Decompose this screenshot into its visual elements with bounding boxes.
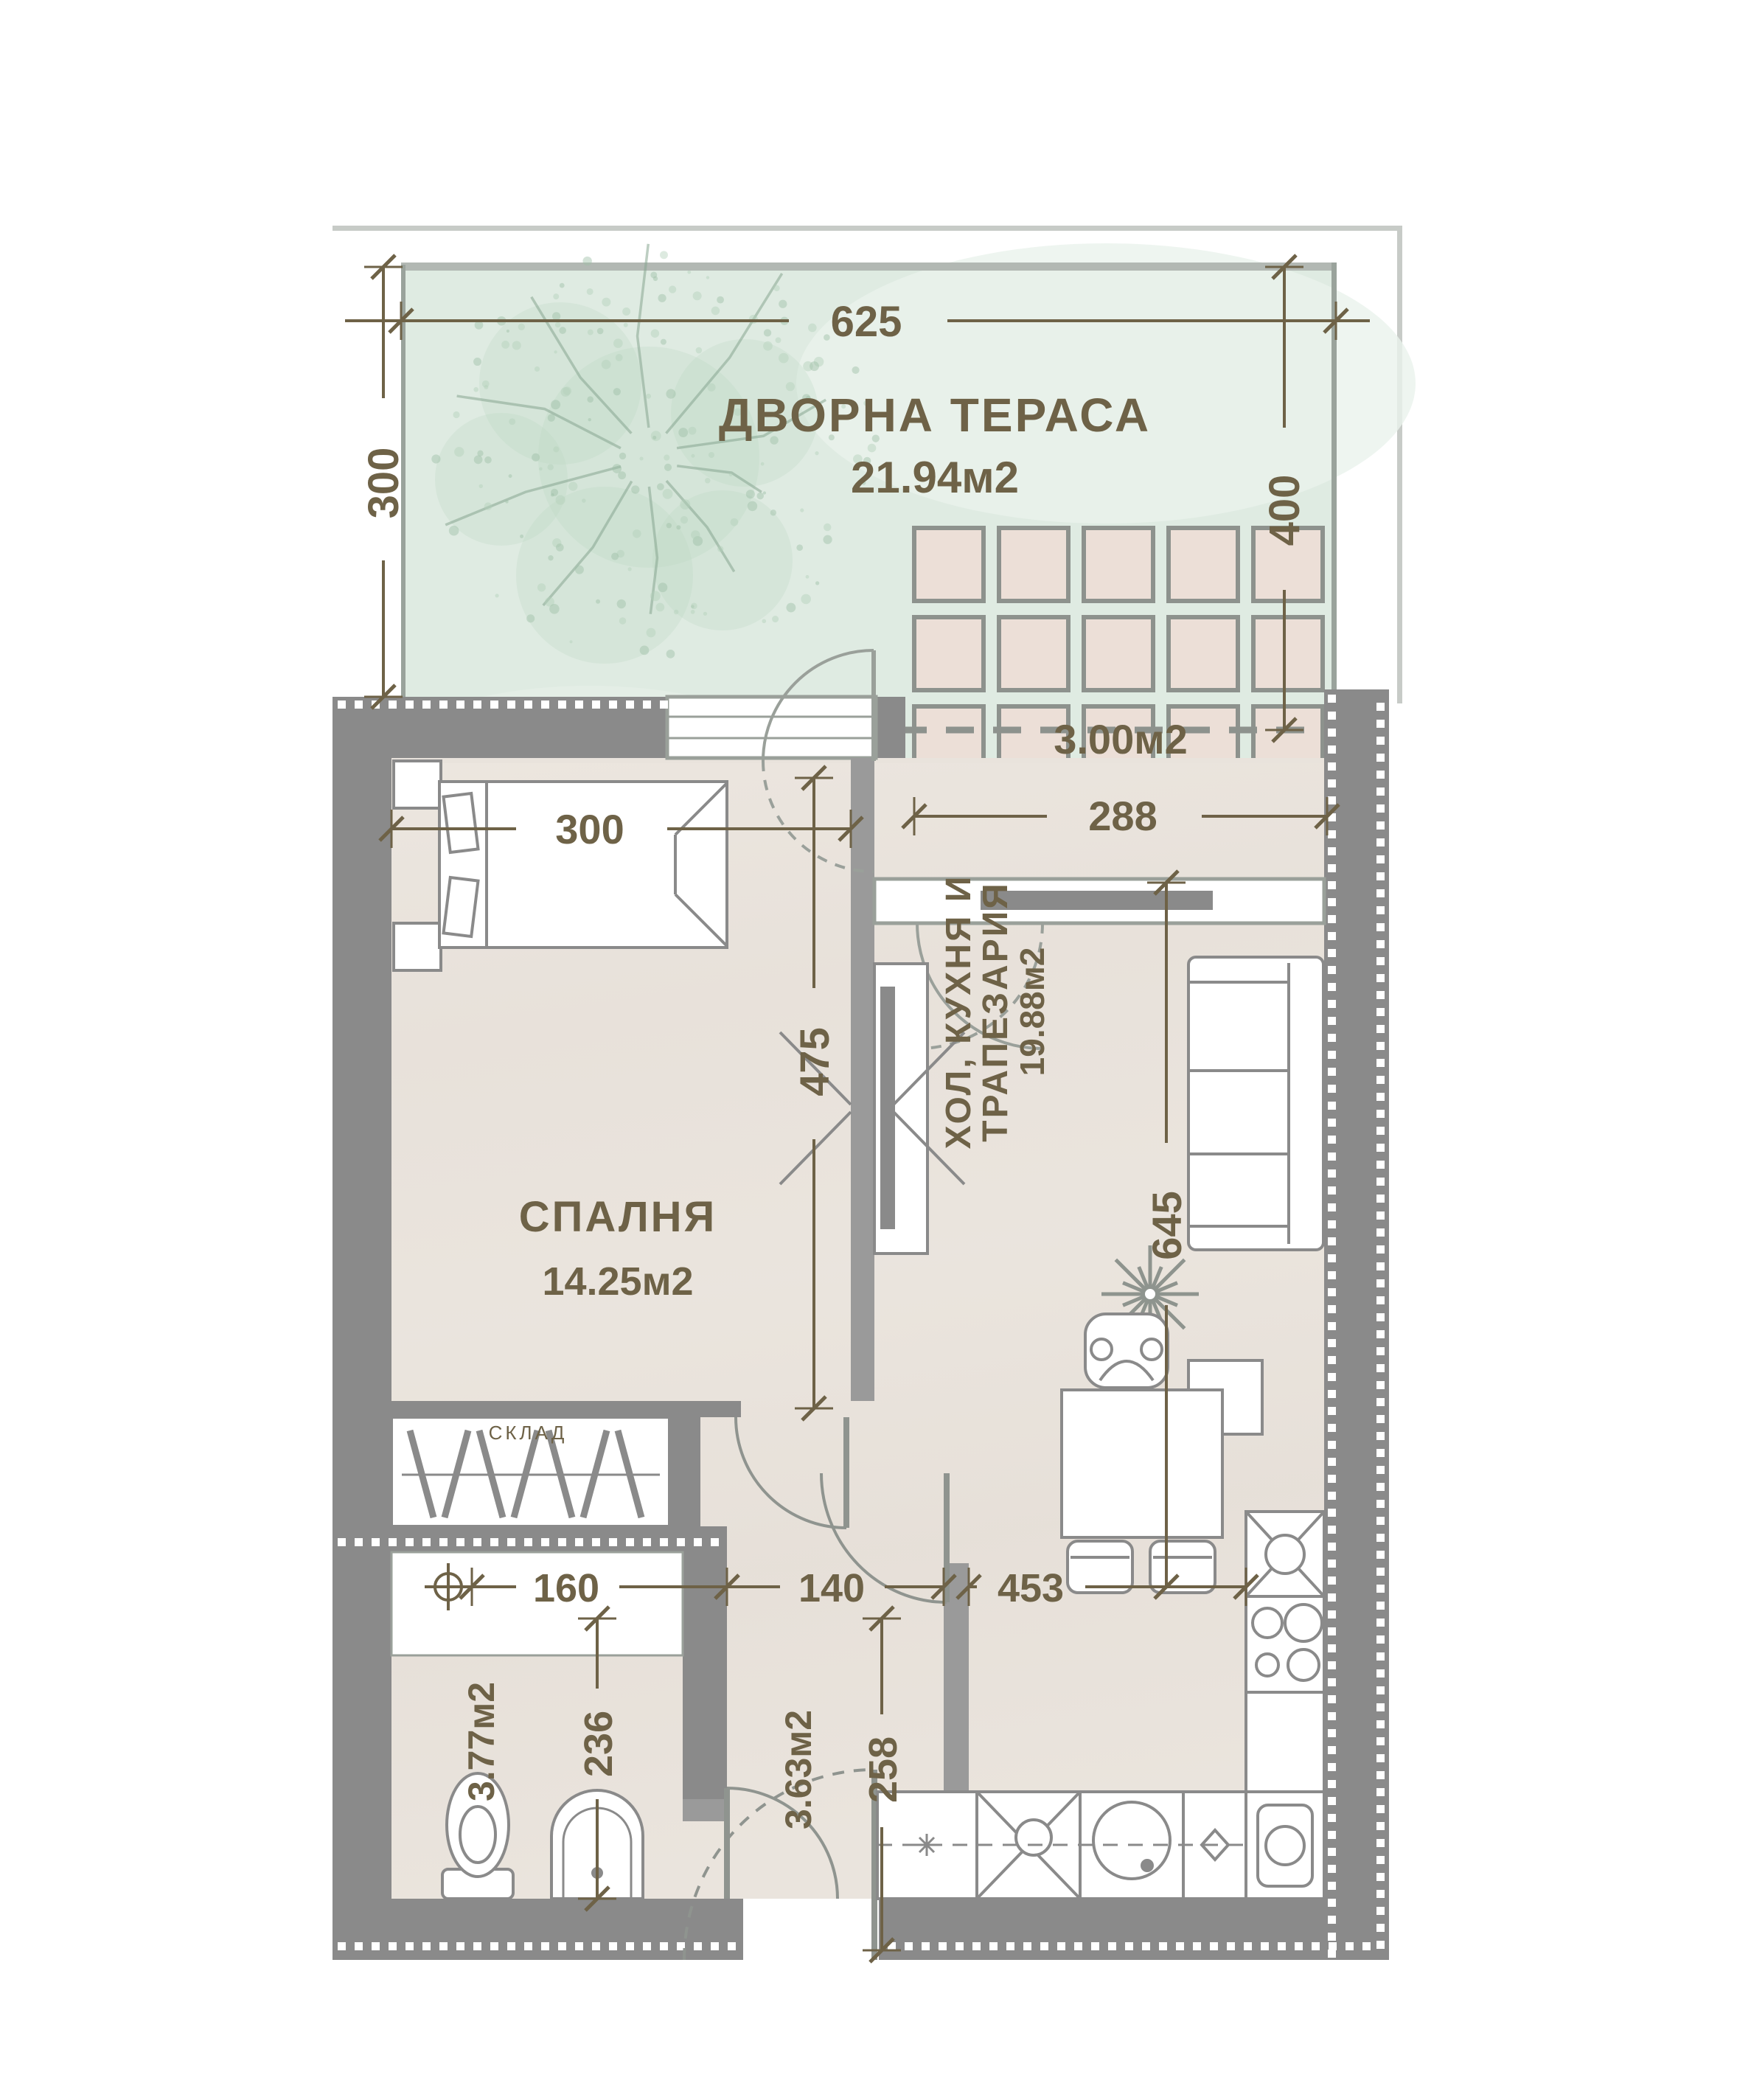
hall-area-label: 3.63м2	[778, 1710, 819, 1829]
dim-bathroom-depth: 236	[577, 1711, 621, 1777]
svg-text:ТРАПЕЗАРИЯ: ТРАПЕЗАРИЯ	[976, 881, 1015, 1141]
patio-area-label: 3.00м2	[1054, 716, 1188, 762]
wall-partition-bedroom-living	[851, 758, 874, 1401]
floor-plan-drawing: ДВОРНА ТЕРАСА 21.94м2 625 300 400 3.00м2…	[0, 0, 1751, 2100]
sofa	[1188, 957, 1323, 1250]
dim-patio-width: 288	[1088, 793, 1157, 839]
dim-terrace-depth: 300	[360, 448, 408, 519]
wall-bathroom-door-jamb	[683, 1799, 727, 1821]
dim-hall-width: 140	[798, 1566, 865, 1610]
kitchen-column	[1246, 1512, 1324, 1899]
wall-bottom-left	[333, 1899, 743, 1960]
closet-label: СКЛАД	[489, 1422, 568, 1444]
wall-bottom-right	[879, 1899, 1389, 1960]
dim-bedroom-width: 300	[555, 806, 624, 852]
dim-living-depth: 645	[1143, 1191, 1190, 1259]
bedroom-window	[667, 697, 876, 758]
svg-text:19.88м2: 19.88м2	[1013, 948, 1051, 1077]
kitchen-counter	[877, 1792, 1246, 1899]
wall-bedroom-top-jamb	[876, 697, 905, 758]
dim-terrace-width: 625	[831, 298, 902, 346]
terrace-area-label: 21.94м2	[851, 453, 1019, 502]
dim-kitchen-width: 453	[998, 1566, 1064, 1610]
dim-patio-depth: 400	[1261, 475, 1309, 546]
bedroom-area-label: 14.25м2	[542, 1259, 693, 1304]
bathroom-area-label: 3.77м2	[461, 1682, 502, 1801]
wall-closet-right	[669, 1401, 700, 1526]
dim-bedroom-depth: 475	[791, 1027, 838, 1096]
floor-plan-page: ДВОРНА ТЕРАСА 21.94м2 625 300 400 3.00м2…	[0, 0, 1751, 2100]
bedroom-name-label: СПАЛНЯ	[519, 1193, 717, 1241]
svg-text:ХОЛ, КУХНЯ И: ХОЛ, КУХНЯ И	[939, 875, 978, 1150]
dim-bathroom-width: 160	[533, 1566, 599, 1610]
wall-left	[333, 697, 391, 1960]
dim-hall-depth: 258	[861, 1736, 905, 1803]
terrace-name-label: ДВОРНА ТЕРАСА	[719, 389, 1151, 442]
wall-bathroom-right	[683, 1552, 727, 1799]
bed	[394, 761, 727, 970]
